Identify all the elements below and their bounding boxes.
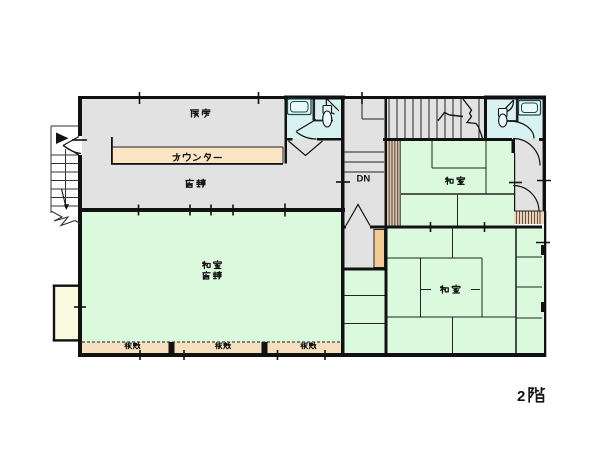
- svg-text:DN: DN: [357, 174, 371, 185]
- svg-text:2: 2: [517, 388, 525, 405]
